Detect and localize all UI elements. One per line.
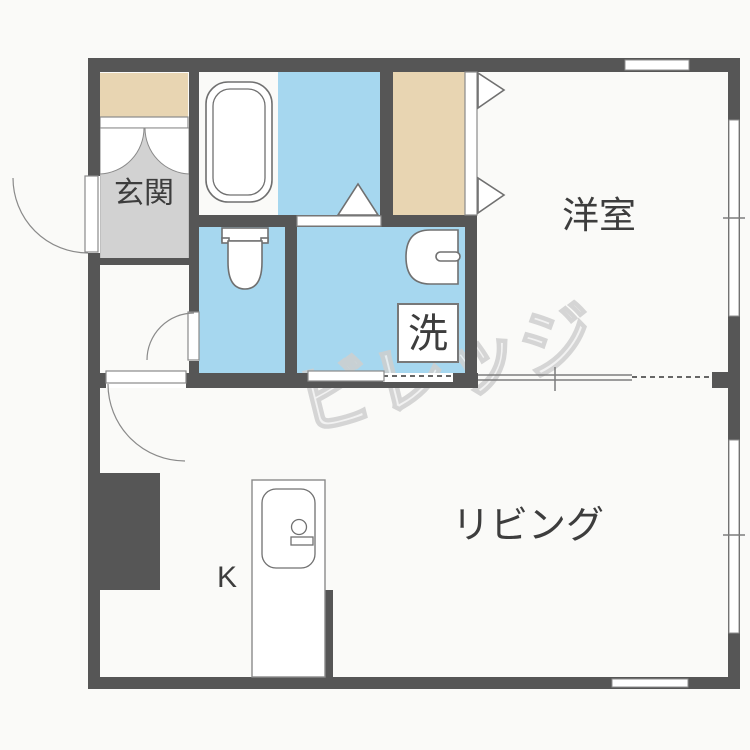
window-bottom <box>612 679 688 687</box>
toilet-door-leaf <box>188 312 199 360</box>
shoe-cabinet <box>100 73 188 117</box>
kitchen-label: K <box>217 561 237 594</box>
western-room-label: 洋室 <box>562 195 636 236</box>
wall-toilet-washroom <box>285 227 297 388</box>
bathtub-icon <box>206 82 272 202</box>
window-living <box>729 440 739 633</box>
washroom-opening <box>383 373 453 382</box>
entrance-door-swing <box>13 178 88 253</box>
wall-kitchen-stub <box>325 590 333 677</box>
wash-basin-icon <box>406 230 460 284</box>
closet-door-strip <box>465 72 477 215</box>
closet-folding-door-icon-top <box>478 73 504 108</box>
entrance-step-edge <box>100 258 189 265</box>
closet-folding-door-icon-bottom <box>478 178 504 213</box>
wall-washroom-right <box>465 227 477 388</box>
living-label: リビング <box>452 505 604 547</box>
window-top <box>625 60 689 70</box>
living-door-leaf <box>106 371 186 383</box>
kitchen-counter <box>252 480 325 677</box>
shoe-cabinet-front <box>100 117 188 128</box>
living-door-swing <box>108 384 185 461</box>
entrance-label: 玄関 <box>114 177 174 210</box>
floorplan: ビレッジ <box>0 0 750 750</box>
washing-machine-space: 洗 <box>398 304 458 362</box>
pillar-block <box>90 473 160 590</box>
bath-door-track <box>297 216 381 226</box>
wall-partition-stub <box>712 372 728 388</box>
entrance-door-leaf <box>85 176 98 252</box>
wall-bath-closet <box>380 72 393 215</box>
washroom-sliding-panel <box>308 371 384 381</box>
closet-floor <box>393 72 465 215</box>
laundry-label: 洗 <box>408 312 448 356</box>
toilet-door-swing <box>147 313 194 360</box>
